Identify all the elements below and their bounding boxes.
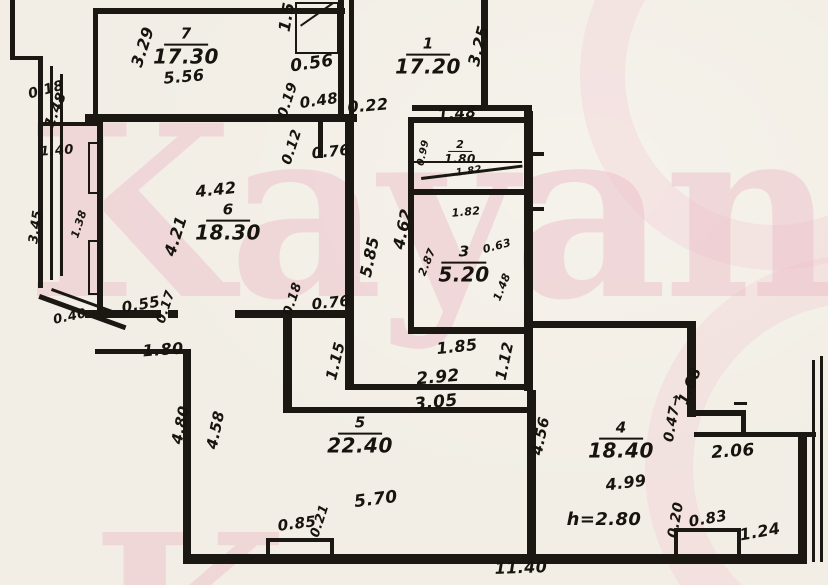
dimension-label: 4.42 xyxy=(195,180,238,200)
room-label: 117.20 xyxy=(395,37,461,78)
dimension-label: 1.82 xyxy=(451,205,481,218)
wall xyxy=(734,402,747,405)
window-box xyxy=(88,142,100,194)
dimension-label: 4.58 xyxy=(205,410,228,451)
wall xyxy=(183,349,191,561)
dimension-label: 2.92 xyxy=(416,368,461,389)
room-number: 3 xyxy=(442,245,486,264)
dimension-label: 0.12 xyxy=(280,128,304,167)
dimension-label: 5.56 xyxy=(163,67,205,87)
dimension-label: 11.40 xyxy=(494,559,547,577)
dimension-label: 4.99 xyxy=(605,473,648,494)
dimension-label: 4.21 xyxy=(162,214,190,258)
dimension-label: 2.06 xyxy=(711,442,756,462)
room-area: 22.40 xyxy=(327,435,393,456)
room-label: 522.40 xyxy=(327,416,393,457)
dimension-label: 1.80 xyxy=(142,341,184,360)
dimension-label: 1.85 xyxy=(436,337,479,357)
wall xyxy=(10,0,15,60)
wall xyxy=(524,111,533,334)
dimension-label: 3.25 xyxy=(466,24,492,68)
room-area: 18.30 xyxy=(195,222,261,243)
wall xyxy=(533,321,690,328)
dimension-label: 1.48 xyxy=(492,272,513,303)
dimension-label: 5.85 xyxy=(358,235,382,279)
room-number: 2 xyxy=(448,139,472,152)
room-label: 418.40 xyxy=(588,421,654,462)
dimension-label: 2.87 xyxy=(417,247,438,278)
room-number: 4 xyxy=(599,421,643,440)
dimension-label: 0.48 xyxy=(299,91,339,111)
wall xyxy=(694,410,746,416)
dimension-label: 0.76 xyxy=(311,143,351,162)
room-number: 7 xyxy=(164,27,208,46)
room-area: 17.20 xyxy=(395,56,461,77)
dimension-label: 1.40 xyxy=(40,143,75,158)
dimension-label: 0.40 xyxy=(52,307,88,327)
wall xyxy=(798,432,807,562)
dimension-label: 0.56 xyxy=(289,53,334,76)
dimension-label: 0.22 xyxy=(347,96,389,116)
wall xyxy=(290,407,533,413)
wall xyxy=(674,528,740,532)
wall xyxy=(283,318,292,413)
dimension-label: h=2.80 xyxy=(567,511,642,529)
watermark-arc xyxy=(580,0,828,270)
wall xyxy=(533,152,544,156)
room-area: 1.80 xyxy=(444,152,476,165)
room-area: 18.40 xyxy=(588,440,654,461)
dimension-label: 1.12 xyxy=(494,341,517,382)
room-number: 1 xyxy=(406,37,450,56)
room-number: 5 xyxy=(338,416,382,435)
wall xyxy=(820,356,823,562)
window-box xyxy=(295,2,339,54)
room-number: 6 xyxy=(206,203,250,222)
room-label: 21.80 xyxy=(444,139,476,165)
dimension-label: 0.21 xyxy=(309,503,332,539)
wall xyxy=(812,360,815,562)
dimension-label: 5.70 xyxy=(353,489,398,511)
window-box xyxy=(88,240,100,295)
room-label: 717.30 xyxy=(153,27,219,68)
wall xyxy=(533,207,544,211)
dimension-label: 1.82 xyxy=(455,165,482,179)
wall xyxy=(524,327,533,391)
wall xyxy=(408,327,533,334)
wall xyxy=(266,538,334,542)
wall xyxy=(408,189,533,195)
dimension-label: 3.05 xyxy=(413,392,458,413)
wall xyxy=(93,10,98,122)
dimension-label: 0.76 xyxy=(311,294,351,313)
room-area: 5.20 xyxy=(438,264,489,285)
wall xyxy=(85,114,357,122)
room-label: 618.30 xyxy=(195,203,261,244)
floor-plan: Kayan K 1.53.295.560.563.250.181.480.190… xyxy=(0,0,828,585)
dimension-label: 1.38 xyxy=(69,209,88,240)
room-area: 17.30 xyxy=(153,46,219,67)
room-label: 35.20 xyxy=(438,245,489,286)
dimension-label: 1.48 xyxy=(437,105,477,123)
